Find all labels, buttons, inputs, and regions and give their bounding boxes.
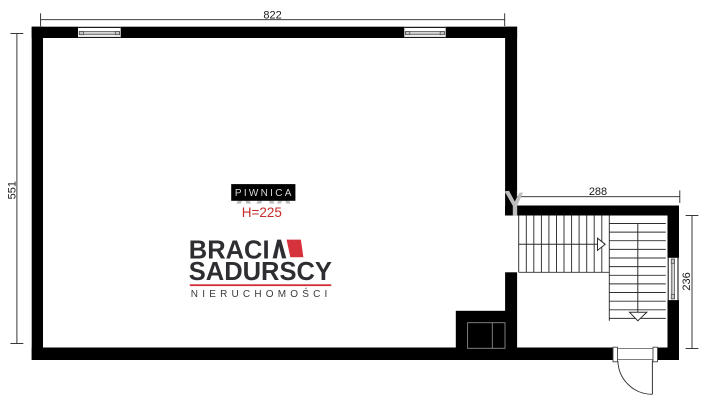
svg-text:PIWNICA: PIWNICA: [235, 188, 294, 199]
svg-text:822: 822: [263, 10, 281, 22]
svg-text:H=225: H=225: [242, 205, 282, 220]
svg-text:236: 236: [681, 272, 693, 290]
svg-text:288: 288: [589, 186, 607, 198]
svg-text:551: 551: [7, 181, 19, 199]
svg-text:SADURSCY: SADURSCY: [189, 258, 332, 286]
svg-text:NIERUCHOMOŚCI: NIERUCHOMOŚCI: [191, 287, 332, 300]
